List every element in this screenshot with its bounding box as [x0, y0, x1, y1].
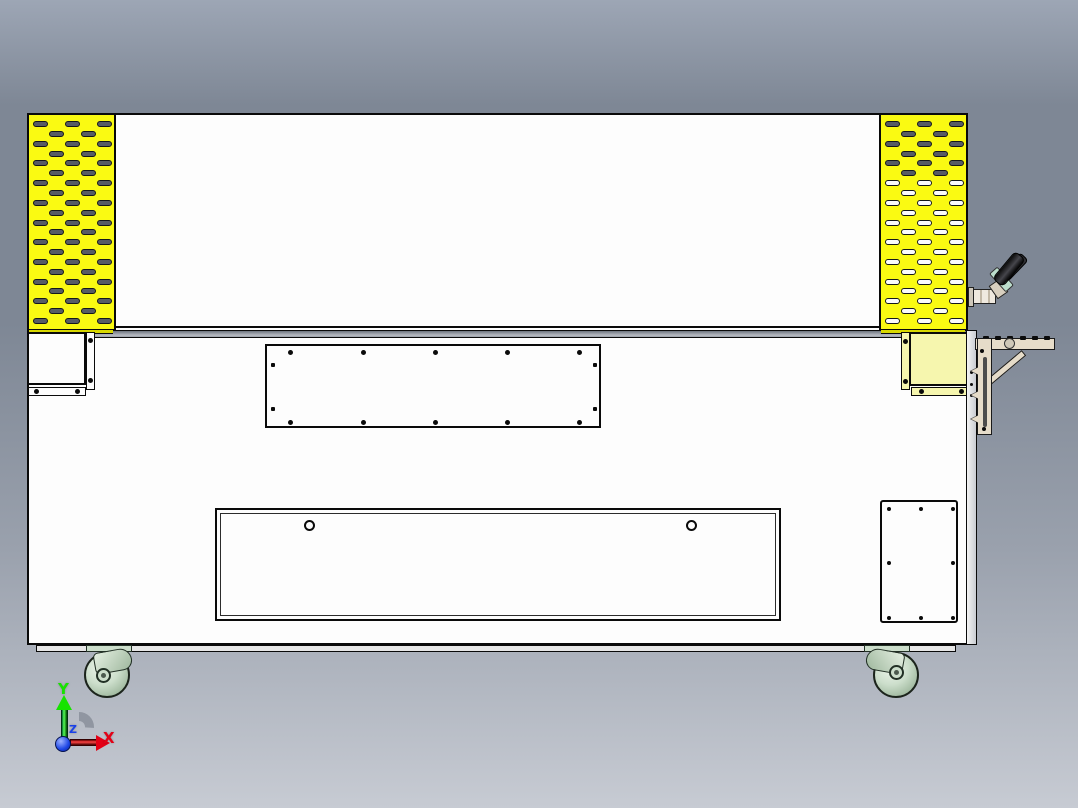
junction-strip-vertical-right[interactable] [901, 332, 910, 390]
vent-slot [33, 298, 48, 304]
vent-slot [97, 239, 112, 245]
door-hole-left [304, 520, 315, 531]
vent-slot [885, 259, 900, 265]
vent-slot [97, 259, 112, 265]
vent-slot [65, 160, 80, 166]
screw [919, 616, 923, 620]
vent-slot [949, 141, 964, 147]
vent-slot [49, 308, 64, 314]
vent-slot [917, 298, 932, 304]
screw [1044, 336, 1050, 340]
screw [980, 349, 984, 353]
screw [433, 350, 438, 355]
vent-slot [917, 259, 932, 265]
vent-slot [33, 259, 48, 265]
bracket-vertical-bar [977, 338, 992, 435]
vent-slot [885, 220, 900, 226]
junction-box-right[interactable] [909, 332, 968, 386]
vent-slot [97, 298, 112, 304]
caster-right-hub [889, 665, 904, 680]
screw [577, 420, 582, 425]
vent-slot [33, 141, 48, 147]
screw [887, 507, 891, 511]
vent-slot [885, 318, 900, 324]
vent-slot [65, 279, 80, 285]
screw [271, 363, 275, 367]
cabinet-divider-strip [93, 330, 966, 338]
vent-slot [917, 318, 932, 324]
vent-slot [49, 249, 64, 255]
vent-slot [65, 298, 80, 304]
screw [903, 379, 908, 384]
vent-slot [933, 249, 948, 255]
hood-bottom-edge [116, 326, 879, 328]
vent-slot [33, 220, 48, 226]
vent-slot [933, 288, 948, 294]
bracket-tooth [971, 391, 979, 399]
vent-slot [33, 239, 48, 245]
screw [951, 616, 955, 620]
vent-slot [885, 200, 900, 206]
vent-slot [933, 170, 948, 176]
base-frame-strip [36, 645, 956, 652]
vent-slot [885, 160, 900, 166]
vent-slot [917, 279, 932, 285]
screw [1020, 336, 1026, 340]
screw [919, 507, 923, 511]
top-access-panel[interactable] [265, 344, 601, 428]
side-access-panel[interactable] [880, 500, 958, 623]
vent-slot [81, 288, 96, 294]
vent-slot [949, 239, 964, 245]
vent-slot [97, 279, 112, 285]
hood-door[interactable] [118, 115, 879, 326]
vent-slot [81, 170, 96, 176]
vent-slot [65, 239, 80, 245]
vent-slot [949, 200, 964, 206]
vent-slot [33, 318, 48, 324]
vent-slot [933, 190, 948, 196]
bracket-hinge-circle [1004, 338, 1015, 349]
vent-slot [33, 279, 48, 285]
vent-slot [933, 131, 948, 137]
vent-slot [917, 200, 932, 206]
vent-slot [33, 121, 48, 127]
vent-slot [901, 269, 916, 275]
bracket-tooth [971, 415, 979, 423]
junction-box-left[interactable] [27, 332, 86, 385]
vent-slot [901, 190, 916, 196]
vent-slot [49, 210, 64, 216]
vent-slot [949, 160, 964, 166]
vent-slot [901, 308, 916, 314]
vent-slot [933, 229, 948, 235]
vent-slot [49, 131, 64, 137]
vent-slot [65, 141, 80, 147]
screw [288, 420, 293, 425]
screw [361, 420, 366, 425]
screw [951, 507, 955, 511]
vent-slot [917, 121, 932, 127]
bracket-slot [983, 357, 987, 427]
screw [505, 420, 510, 425]
cabinet-right-edge[interactable] [966, 330, 977, 645]
vent-slot [949, 220, 964, 226]
vent-slot [65, 121, 80, 127]
vent-panel-left[interactable] [27, 113, 116, 331]
vent-slot [49, 170, 64, 176]
vent-slot [97, 141, 112, 147]
vent-slot [901, 229, 916, 235]
vent-slot [917, 180, 932, 186]
vent-slot [65, 220, 80, 226]
screw [593, 363, 597, 367]
vent-slot [917, 220, 932, 226]
vent-slot [65, 318, 80, 324]
vent-slot [933, 308, 948, 314]
z-axis-label: Z [69, 723, 77, 736]
screw [361, 350, 366, 355]
vent-slot [81, 308, 96, 314]
vent-slot [97, 160, 112, 166]
vent-slot [97, 200, 112, 206]
vent-slot [885, 298, 900, 304]
vent-slot [949, 259, 964, 265]
vent-slot [901, 131, 916, 137]
vent-slot [81, 210, 96, 216]
screw [593, 407, 597, 411]
screw [970, 383, 973, 386]
vent-slot [933, 151, 948, 157]
screw [505, 350, 510, 355]
junction-strip-horizontal-left[interactable] [28, 387, 86, 396]
vent-slot [97, 121, 112, 127]
vent-slot [33, 200, 48, 206]
vent-slot [49, 229, 64, 235]
vent-slot [917, 141, 932, 147]
vent-slot [81, 131, 96, 137]
vent-slot [901, 151, 916, 157]
y-axis-label: Y [58, 680, 69, 698]
vent-slot [885, 121, 900, 127]
vent-slot [81, 229, 96, 235]
vent-slot [949, 180, 964, 186]
vent-slot [33, 180, 48, 186]
screw [887, 616, 891, 620]
screw [903, 339, 908, 344]
origin-ball [55, 736, 71, 752]
vent-slot [933, 269, 948, 275]
screw [887, 561, 891, 565]
screw [951, 561, 955, 565]
vent-slot [97, 220, 112, 226]
vent-slot [885, 279, 900, 285]
bracket-tooth [971, 367, 979, 375]
door-hole-right [686, 520, 697, 531]
screw [982, 427, 986, 431]
junction-strip-vertical-left[interactable] [86, 332, 95, 390]
screw [75, 389, 80, 394]
screw [88, 378, 93, 383]
vent-slot [885, 180, 900, 186]
screw [288, 350, 293, 355]
vent-slot [885, 239, 900, 245]
screw [995, 336, 1001, 340]
vent-slot [49, 288, 64, 294]
vent-slot [949, 279, 964, 285]
vent-slot [65, 200, 80, 206]
vent-slot [901, 288, 916, 294]
cad-viewport: Z Y X [0, 0, 1078, 808]
vent-slot [97, 180, 112, 186]
screw [271, 407, 275, 411]
screw [959, 389, 964, 394]
vent-slot [65, 259, 80, 265]
vent-slot [933, 210, 948, 216]
vent-slot [97, 318, 112, 324]
screw [919, 389, 924, 394]
screw [1032, 336, 1038, 340]
vent-slot [949, 318, 964, 324]
junction-strip-horizontal-right[interactable] [911, 387, 969, 396]
vent-slot [917, 239, 932, 245]
vent-panel-right[interactable] [879, 113, 968, 331]
vent-slot [901, 170, 916, 176]
vent-slot [33, 160, 48, 166]
vent-slot [81, 269, 96, 275]
screw [34, 389, 39, 394]
x-axis-label: X [103, 729, 115, 747]
vent-slot [49, 269, 64, 275]
vent-slot [901, 210, 916, 216]
vent-slot [81, 190, 96, 196]
caster-left-hub [96, 668, 111, 683]
vent-slot [885, 141, 900, 147]
vent-slot [49, 151, 64, 157]
vent-slot [949, 298, 964, 304]
vent-slot [81, 151, 96, 157]
x-axis-arrow [70, 739, 97, 746]
vent-slot [949, 121, 964, 127]
vent-slot [901, 249, 916, 255]
screw [88, 338, 93, 343]
screw [577, 350, 582, 355]
vent-slot [917, 160, 932, 166]
bottom-access-door[interactable] [215, 508, 781, 621]
vent-slot [81, 249, 96, 255]
screw [433, 420, 438, 425]
vent-slot [65, 180, 80, 186]
vent-slot [49, 190, 64, 196]
